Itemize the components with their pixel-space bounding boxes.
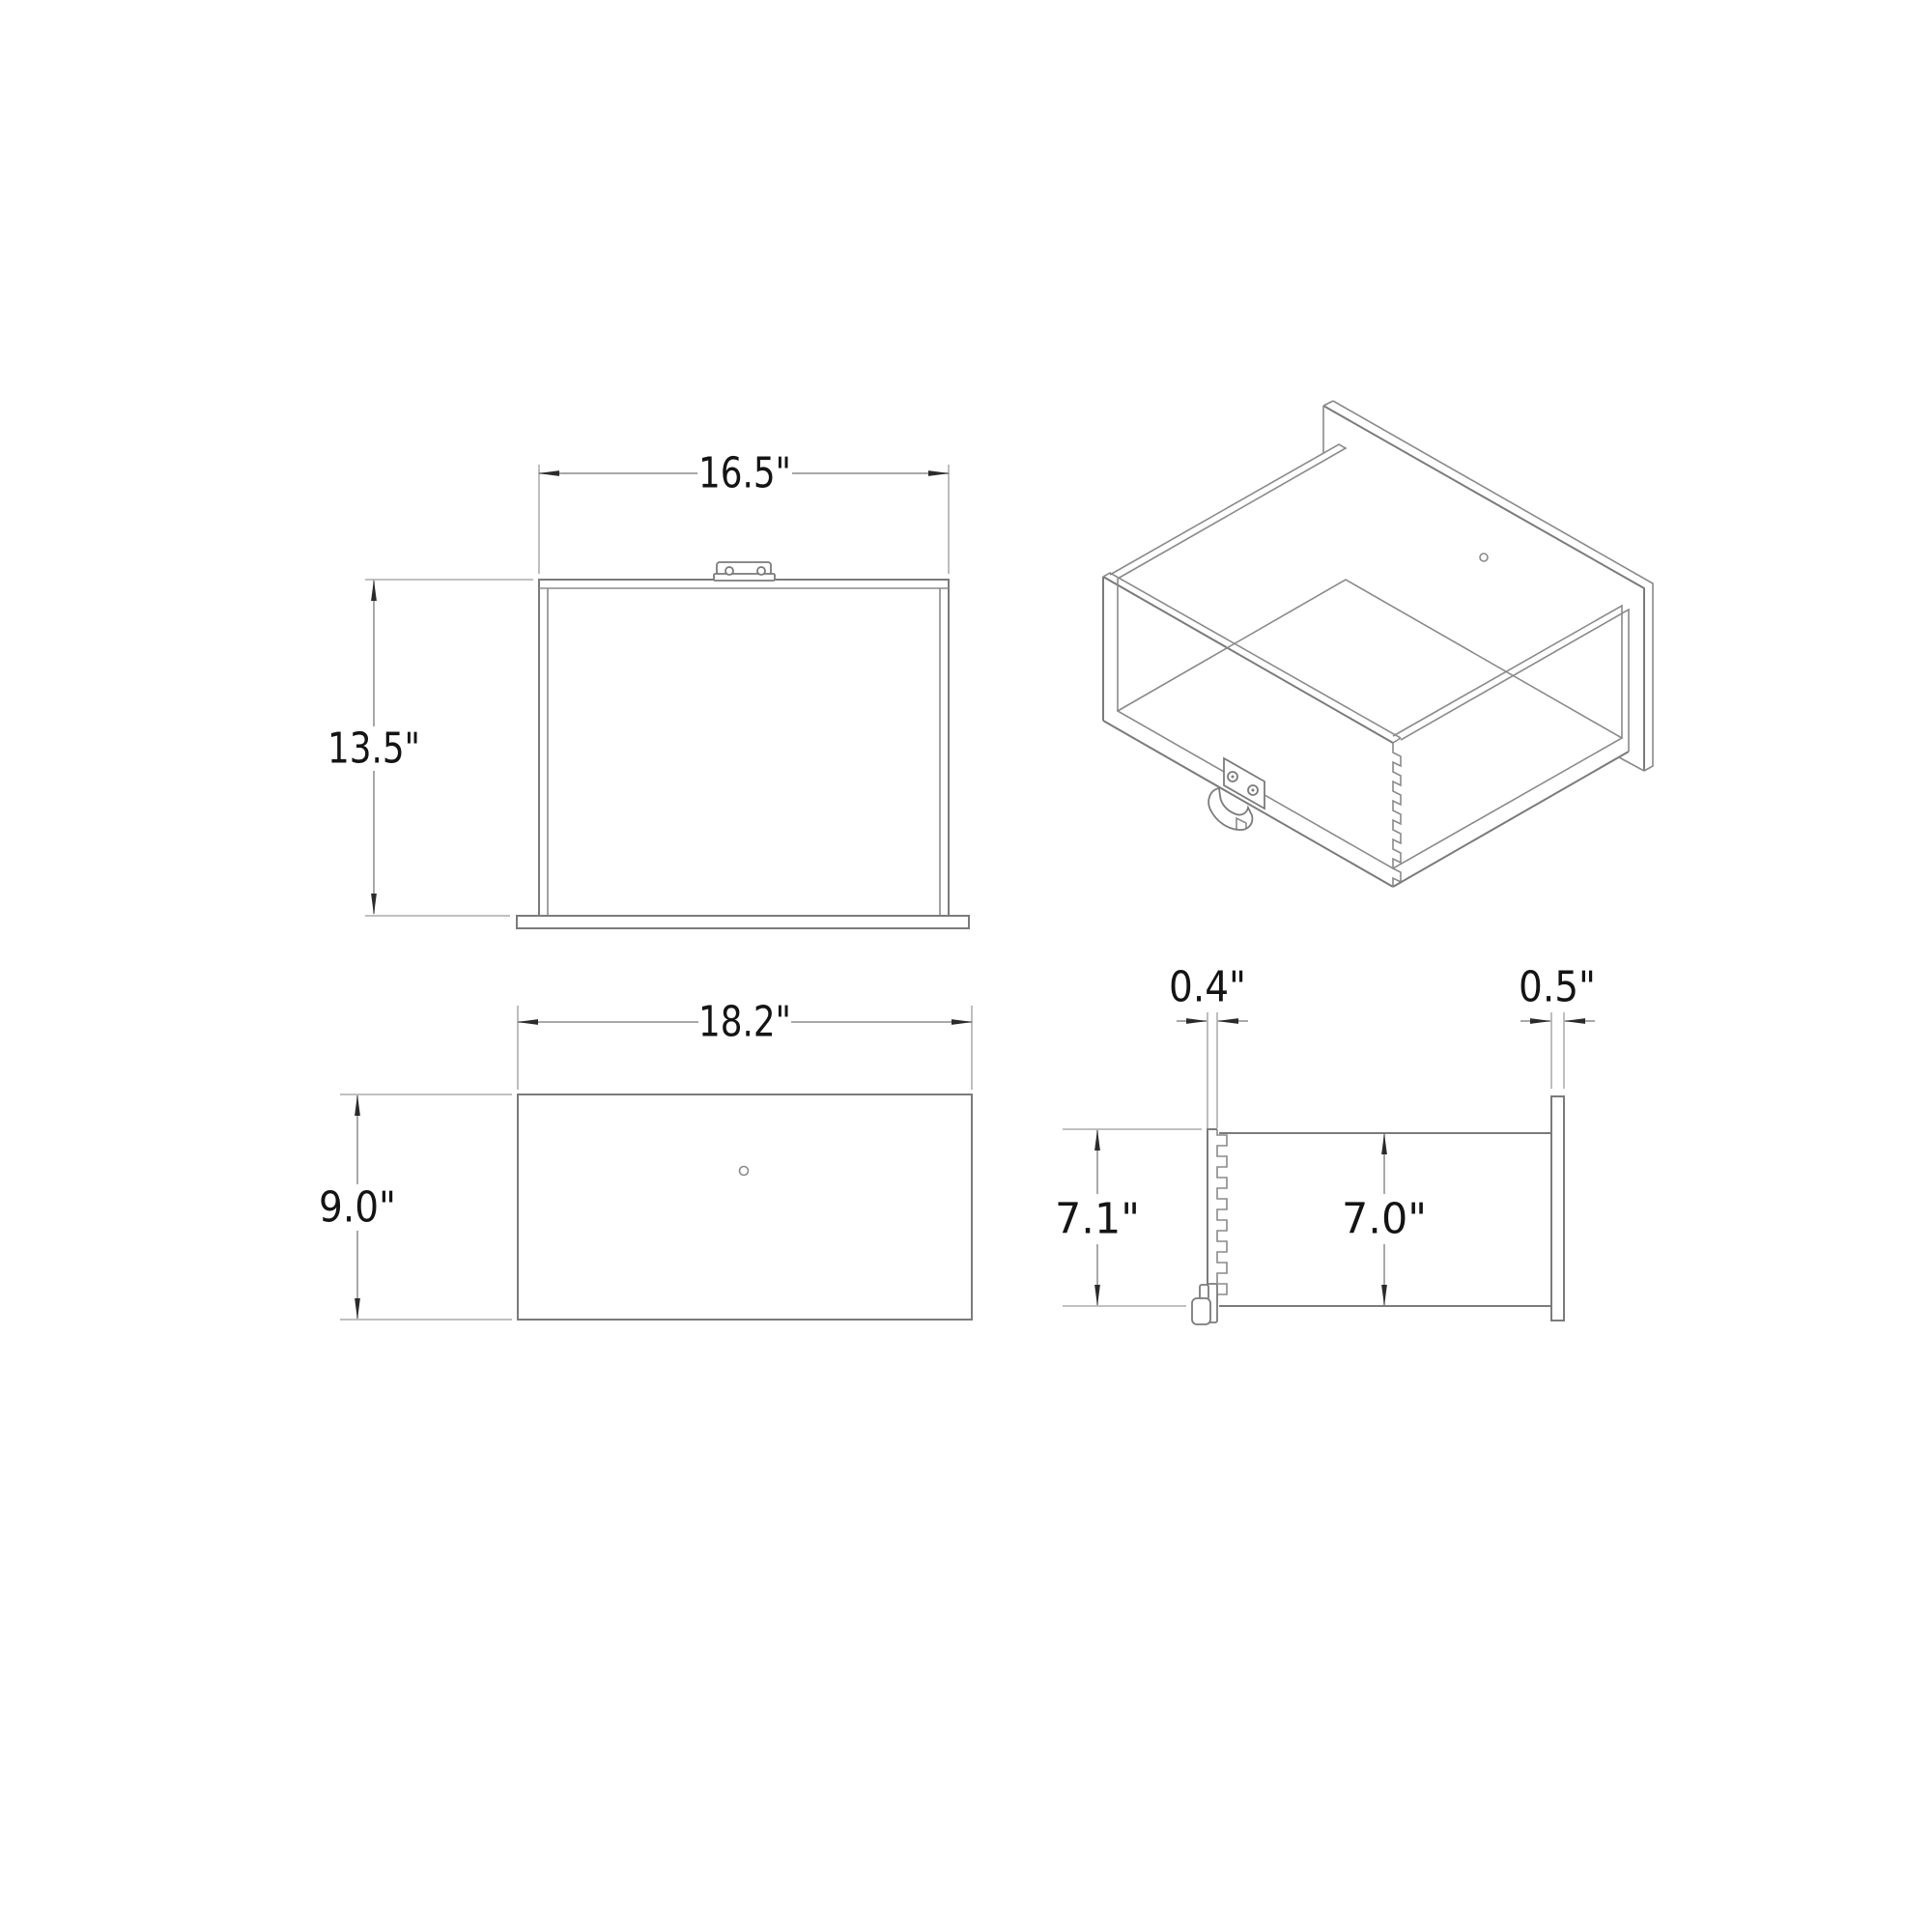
faceplate-hole — [740, 1167, 749, 1176]
side-height-label: 7.0" — [1342, 1195, 1427, 1244]
iso-back-strip-end — [1393, 738, 1401, 743]
iso-latch — [1208, 758, 1264, 830]
side-latch-hook — [1192, 1298, 1210, 1324]
latch-screw-left — [725, 567, 733, 575]
faceplate-thickness-label: 0.5" — [1519, 963, 1596, 1012]
faceplate-view: 18.2" 9.0" — [319, 998, 972, 1321]
latch-screw-right — [757, 567, 765, 575]
iso-right-panel-bottom-edge — [1393, 752, 1629, 887]
iso-latch-screw-dot-1 — [1232, 776, 1235, 779]
iso-faceplate-bottom-tab — [1619, 757, 1644, 771]
iso-back-bottom-edge — [1103, 721, 1393, 887]
side-latch-step — [1200, 1285, 1208, 1299]
iso-faceplate-hole — [1480, 554, 1488, 561]
back-height-dimension: 7.1" — [1055, 1129, 1202, 1306]
front-width-dimension: 16.5" — [539, 449, 949, 575]
faceplate-height-dimension: 9.0" — [319, 1094, 512, 1320]
iso-back-top-edge — [1103, 577, 1393, 743]
iso-interior-bottom — [1118, 580, 1622, 868]
front-view-faceplate-edge — [517, 916, 969, 928]
faceplate-width-dimension: 18.2" — [518, 998, 972, 1091]
side-height-dimension: 7.0" — [1342, 1134, 1427, 1305]
faceplate-height-label: 9.0" — [319, 1183, 396, 1233]
drawing-sheet: 16.5" 13.5" — [0, 0, 1932, 1932]
iso-faceplate-outer-outline — [1333, 401, 1653, 771]
front-height-label: 13.5" — [327, 724, 420, 774]
side-back-panel — [1207, 1129, 1217, 1306]
iso-back-top-strip — [1103, 573, 1401, 738]
iso-latch-screw-dot-2 — [1252, 789, 1255, 792]
iso-left-panel-top-strip — [1110, 444, 1346, 579]
front-view-outer-outline — [539, 580, 949, 916]
front-width-label: 16.5" — [698, 449, 791, 498]
front-height-dimension: 13.5" — [327, 580, 533, 916]
back-height-label: 7.1" — [1055, 1195, 1140, 1244]
faceplate-thickness-dimension: 0.5" — [1519, 963, 1596, 1090]
drawer-technical-drawing: 16.5" 13.5" — [0, 0, 1932, 1932]
front-view: 16.5" 13.5" — [327, 449, 969, 929]
side-faceplate — [1551, 1096, 1564, 1321]
isometric-view — [1103, 401, 1653, 887]
front-view-latch — [714, 562, 775, 581]
side-latch — [1192, 1284, 1217, 1324]
iso-faceplate-top-corner — [1323, 401, 1333, 406]
side-section-view: 0.4" 0.5" 7.1" 7.0" — [1055, 963, 1596, 1325]
back-thickness-label: 0.4" — [1169, 963, 1246, 1012]
back-thickness-dimension: 0.4" — [1169, 963, 1248, 1129]
latch-base — [714, 574, 775, 581]
faceplate-outline — [518, 1094, 972, 1320]
faceplate-width-label: 18.2" — [698, 998, 791, 1047]
iso-faceplate-inner-outline — [1323, 406, 1644, 771]
side-dovetail-pins — [1217, 1129, 1227, 1300]
